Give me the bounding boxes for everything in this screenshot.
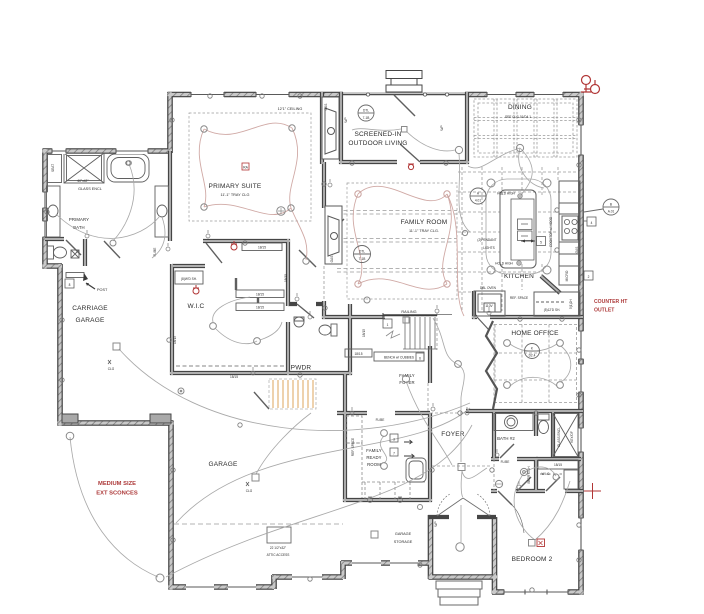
svg-text:FAMILY ROOM: FAMILY ROOM <box>401 219 448 226</box>
svg-text:7-1B: 7-1B <box>363 116 370 120</box>
svg-text:8: 8 <box>69 283 71 287</box>
svg-text:6: 6 <box>419 357 421 361</box>
svg-text:18/15: 18/15 <box>173 336 177 344</box>
svg-text:HOLD HIGH: HOLD HIGH <box>497 192 515 196</box>
svg-text:SEE CLG-01/D4.1: SEE CLG-01/D4.1 <box>505 115 531 119</box>
svg-text:GARAGE: GARAGE <box>395 532 412 536</box>
svg-text:18/15: 18/15 <box>284 274 288 282</box>
svg-text:7: 7 <box>393 452 395 456</box>
svg-text:READY: READY <box>366 455 381 460</box>
svg-text:HOLD HIGH: HOLD HIGH <box>495 262 513 266</box>
svg-text:FL/BE: FL/BE <box>501 460 510 464</box>
svg-text:BEDROOM 2: BEDROOM 2 <box>512 556 553 563</box>
svg-text:W.I.C: W.I.C <box>188 303 205 310</box>
svg-text:COUNTER HT: COUNTER HT <box>594 299 628 305</box>
svg-text:POST: POST <box>97 288 108 292</box>
svg-text:5(1)2H: 5(1)2H <box>569 299 573 309</box>
svg-text:2: 2 <box>588 275 590 279</box>
svg-text:PRIMARY SUITE: PRIMARY SUITE <box>209 183 262 190</box>
svg-text:GAS: GAS <box>575 247 579 254</box>
svg-text:SCREENED-IN: SCREENED-IN <box>355 131 402 138</box>
svg-text:GAS: GAS <box>330 256 334 263</box>
svg-text:ATTIC ACCESS: ATTIC ACCESS <box>267 553 290 557</box>
svg-text:18/15: 18/15 <box>256 293 264 297</box>
svg-text:BATH: BATH <box>73 225 85 230</box>
svg-text:BENCH w/ CUBBIES: BENCH w/ CUBBIES <box>384 356 414 360</box>
svg-text:PRIMARY: PRIMARY <box>69 217 89 222</box>
svg-text:HOME OFFICE: HOME OFFICE <box>511 330 559 337</box>
svg-text:FL/BE: FL/BE <box>153 248 157 257</box>
svg-text:18/15: 18/15 <box>554 463 562 467</box>
svg-text:60"x42": 60"x42" <box>78 179 89 183</box>
svg-text:18/15: 18/15 <box>355 352 363 356</box>
svg-text:REF. SPACE: REF. SPACE <box>510 296 528 300</box>
svg-text:WP: WP <box>434 521 438 526</box>
svg-text:REF. SPACE: REF. SPACE <box>351 438 355 456</box>
svg-text:18/15: 18/15 <box>256 306 264 310</box>
svg-text:BATH #2: BATH #2 <box>497 436 515 441</box>
svg-text:7-1B: 7-1B <box>359 257 366 261</box>
svg-text:FAMILY: FAMILY <box>366 448 382 453</box>
svg-text:WP: WP <box>344 117 348 122</box>
svg-text:3: 3 <box>393 438 395 442</box>
svg-text:PWDR: PWDR <box>291 365 312 372</box>
svg-text:DTL: DTL <box>359 250 365 254</box>
svg-text:BEDR'M 2H: BEDR'M 2H <box>527 466 531 484</box>
svg-text:D2.4: D2.4 <box>529 354 536 358</box>
svg-text:A.01: A.01 <box>608 210 615 214</box>
svg-text:WP: WP <box>440 125 444 130</box>
svg-text:MICRO: MICRO <box>565 270 569 281</box>
svg-text:GLASS ENCL: GLASS ENCL <box>557 427 561 447</box>
svg-text:5: 5 <box>540 241 542 245</box>
svg-text:FL/BE: FL/BE <box>376 418 385 422</box>
svg-text:DTL: DTL <box>363 109 369 113</box>
svg-text:1: 1 <box>387 323 389 327</box>
svg-text:EXT SCONCES: EXT SCONCES <box>96 491 138 497</box>
svg-text:18/15: 18/15 <box>362 329 366 337</box>
svg-text:4.01: 4.01 <box>475 199 481 203</box>
svg-text:STORAGE: STORAGE <box>394 540 413 544</box>
svg-text:18/15: 18/15 <box>230 375 238 379</box>
svg-text:MEDIUM SIZE: MEDIUM SIZE <box>98 481 136 487</box>
svg-text:OUTLET: OUTLET <box>594 308 615 314</box>
svg-text:(5)12'D SH.: (5)12'D SH. <box>544 308 561 312</box>
svg-text:LIGHTS: LIGHTS <box>483 246 495 250</box>
svg-text:4: 4 <box>591 221 593 225</box>
svg-text:GARAGE: GARAGE <box>208 461 237 468</box>
svg-text:CLG: CLG <box>108 367 115 371</box>
svg-text:KEY/DF: KEY/DF <box>570 431 574 443</box>
svg-text:110V: 110V <box>485 304 493 308</box>
svg-text:DINING: DINING <box>508 104 532 111</box>
svg-text:CLG: CLG <box>246 489 253 493</box>
svg-text:GAS: GAS <box>324 104 328 111</box>
svg-text:11'-1" TRAY CLG.: 11'-1" TRAY CLG. <box>409 229 439 233</box>
svg-text:GLASS ENCL: GLASS ENCL <box>78 187 102 191</box>
svg-text:18/15: 18/15 <box>258 246 266 250</box>
svg-text:CARRIAGE: CARRIAGE <box>72 305 108 312</box>
svg-text:B: B <box>610 203 612 207</box>
svg-text:RAILING: RAILING <box>401 310 416 314</box>
svg-text:OUTDOOR LIVING: OUTDOOR LIVING <box>348 140 407 147</box>
svg-text:(8)W'D SH.: (8)W'D SH. <box>181 277 197 281</box>
svg-text:W.I.C.: W.I.C. <box>542 472 551 476</box>
svg-text:11'-1" TRAY CLG: 11'-1" TRAY CLG <box>220 193 249 197</box>
svg-text:12'1" CEILING: 12'1" CEILING <box>278 107 303 111</box>
svg-text:RA: RA <box>243 166 248 170</box>
svg-text:DBL OVEN: DBL OVEN <box>480 286 497 290</box>
svg-text:(2)PENDANT: (2)PENDANT <box>477 238 496 242</box>
svg-text:SEAT: SEAT <box>51 164 55 172</box>
svg-text:COOKTOP w/ HOOD: COOKTOP w/ HOOD <box>549 216 553 247</box>
svg-text:22 1/2"x32": 22 1/2"x32" <box>270 546 286 550</box>
svg-text:GARAGE: GARAGE <box>75 317 104 324</box>
svg-text:ROOM: ROOM <box>367 462 381 467</box>
